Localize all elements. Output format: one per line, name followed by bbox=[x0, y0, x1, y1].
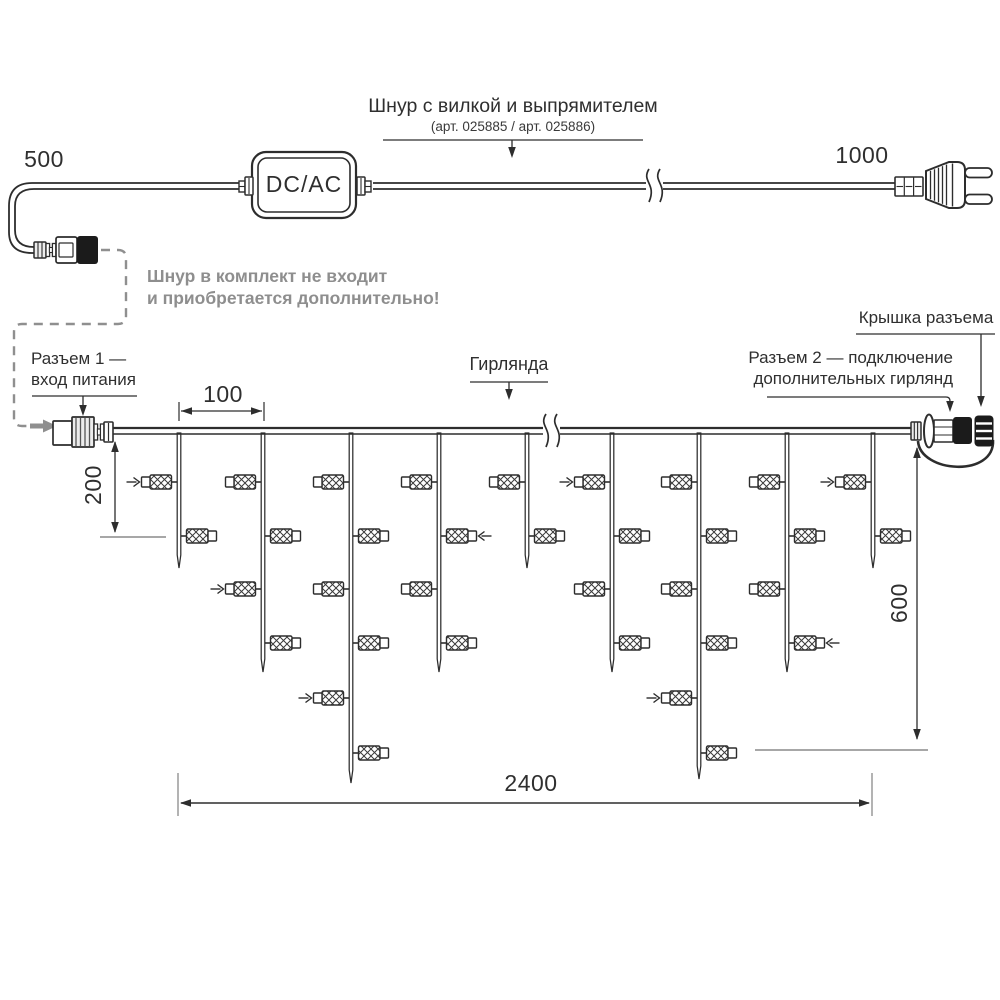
diagram-canvas: Шнур с вилкой и выпрямителем (арт. 02588… bbox=[0, 0, 1000, 1000]
lamp-icon bbox=[662, 475, 698, 489]
lamp-icon bbox=[490, 475, 526, 489]
lamp-icon bbox=[226, 475, 262, 489]
connector1-label-line2: вход питания bbox=[31, 370, 136, 390]
lamp-icon bbox=[127, 475, 178, 489]
garland-drop bbox=[560, 433, 650, 672]
connector1-icon bbox=[53, 417, 113, 447]
cord-title: Шнур с вилкой и выпрямителем bbox=[313, 95, 713, 117]
lamp-icon bbox=[647, 691, 698, 705]
dim-1000-label: 1000 bbox=[822, 142, 902, 168]
lamp-icon bbox=[575, 582, 611, 596]
dim-500-label: 500 bbox=[8, 146, 80, 172]
cord-title-leader bbox=[383, 140, 643, 158]
lamp-icon bbox=[701, 746, 737, 760]
lamp-icon bbox=[441, 529, 492, 543]
lamp-icon bbox=[353, 636, 389, 650]
power-plug-icon bbox=[895, 162, 992, 208]
garland-drop bbox=[127, 433, 217, 568]
connector2-leader bbox=[767, 397, 954, 412]
connector2-label-line2: дополнительных гирлянд bbox=[713, 369, 953, 389]
lamp-icon bbox=[821, 475, 872, 489]
cord-not-included-path bbox=[14, 250, 126, 433]
garland-drop bbox=[750, 433, 840, 672]
garland-drop bbox=[402, 433, 492, 672]
lamp-icon bbox=[875, 529, 911, 543]
lamp-icon bbox=[662, 582, 698, 596]
connector2-icon bbox=[911, 415, 994, 467]
note-line2: и приобретается дополнительно! bbox=[147, 288, 440, 308]
lamp-icon bbox=[353, 529, 389, 543]
cap-label: Крышка разъема bbox=[855, 308, 997, 328]
lamp-icon bbox=[353, 746, 389, 760]
connector-cap-icon bbox=[975, 416, 994, 447]
lamp-icon bbox=[750, 582, 786, 596]
lamp-icon bbox=[614, 636, 650, 650]
lamp-icon bbox=[265, 636, 301, 650]
garland-wire bbox=[112, 414, 911, 447]
garland-leader bbox=[470, 382, 548, 400]
cord-connector-icon bbox=[34, 236, 98, 264]
power-cable-right bbox=[373, 169, 895, 202]
cord-subtitle: (арт. 025885 / арт. 025886) bbox=[313, 119, 713, 135]
lamp-icon bbox=[402, 475, 438, 489]
garland-label: Гирлянда bbox=[454, 354, 564, 375]
lamp-icon bbox=[614, 529, 650, 543]
dim-200-label: 200 bbox=[79, 445, 107, 525]
lamp-icon bbox=[314, 475, 350, 489]
dim-100-label: 100 bbox=[182, 381, 264, 407]
lamp-icon bbox=[181, 529, 217, 543]
note-line1: Шнур в комплект не входит bbox=[147, 266, 387, 286]
lamp-icon bbox=[560, 475, 611, 489]
lamp-icon bbox=[789, 529, 825, 543]
garland-drop bbox=[211, 433, 301, 672]
garland-drop bbox=[490, 433, 565, 568]
lamp-icon bbox=[701, 529, 737, 543]
lamp-icon bbox=[701, 636, 737, 650]
garland-drop bbox=[647, 433, 737, 779]
garland-drop bbox=[821, 433, 911, 568]
dim-600-label: 600 bbox=[885, 563, 913, 643]
lamp-icon bbox=[750, 475, 786, 489]
connector2-label-line1: Разъем 2 — подключение bbox=[713, 348, 953, 368]
adapter-label: DC/AC bbox=[252, 152, 356, 216]
connector1-label-line1: Разъем 1 — bbox=[31, 349, 126, 369]
lamp-icon bbox=[529, 529, 565, 543]
lamp-icon bbox=[265, 529, 301, 543]
dim-2400-label: 2400 bbox=[481, 770, 581, 796]
garland-drop bbox=[299, 433, 389, 783]
lamp-icon bbox=[441, 636, 477, 650]
lamp-icon bbox=[211, 582, 262, 596]
lamp-icon bbox=[299, 691, 350, 705]
connector1-leader bbox=[32, 396, 137, 416]
lamp-icon bbox=[789, 636, 840, 650]
lamp-icon bbox=[314, 582, 350, 596]
lamp-icon bbox=[402, 582, 438, 596]
